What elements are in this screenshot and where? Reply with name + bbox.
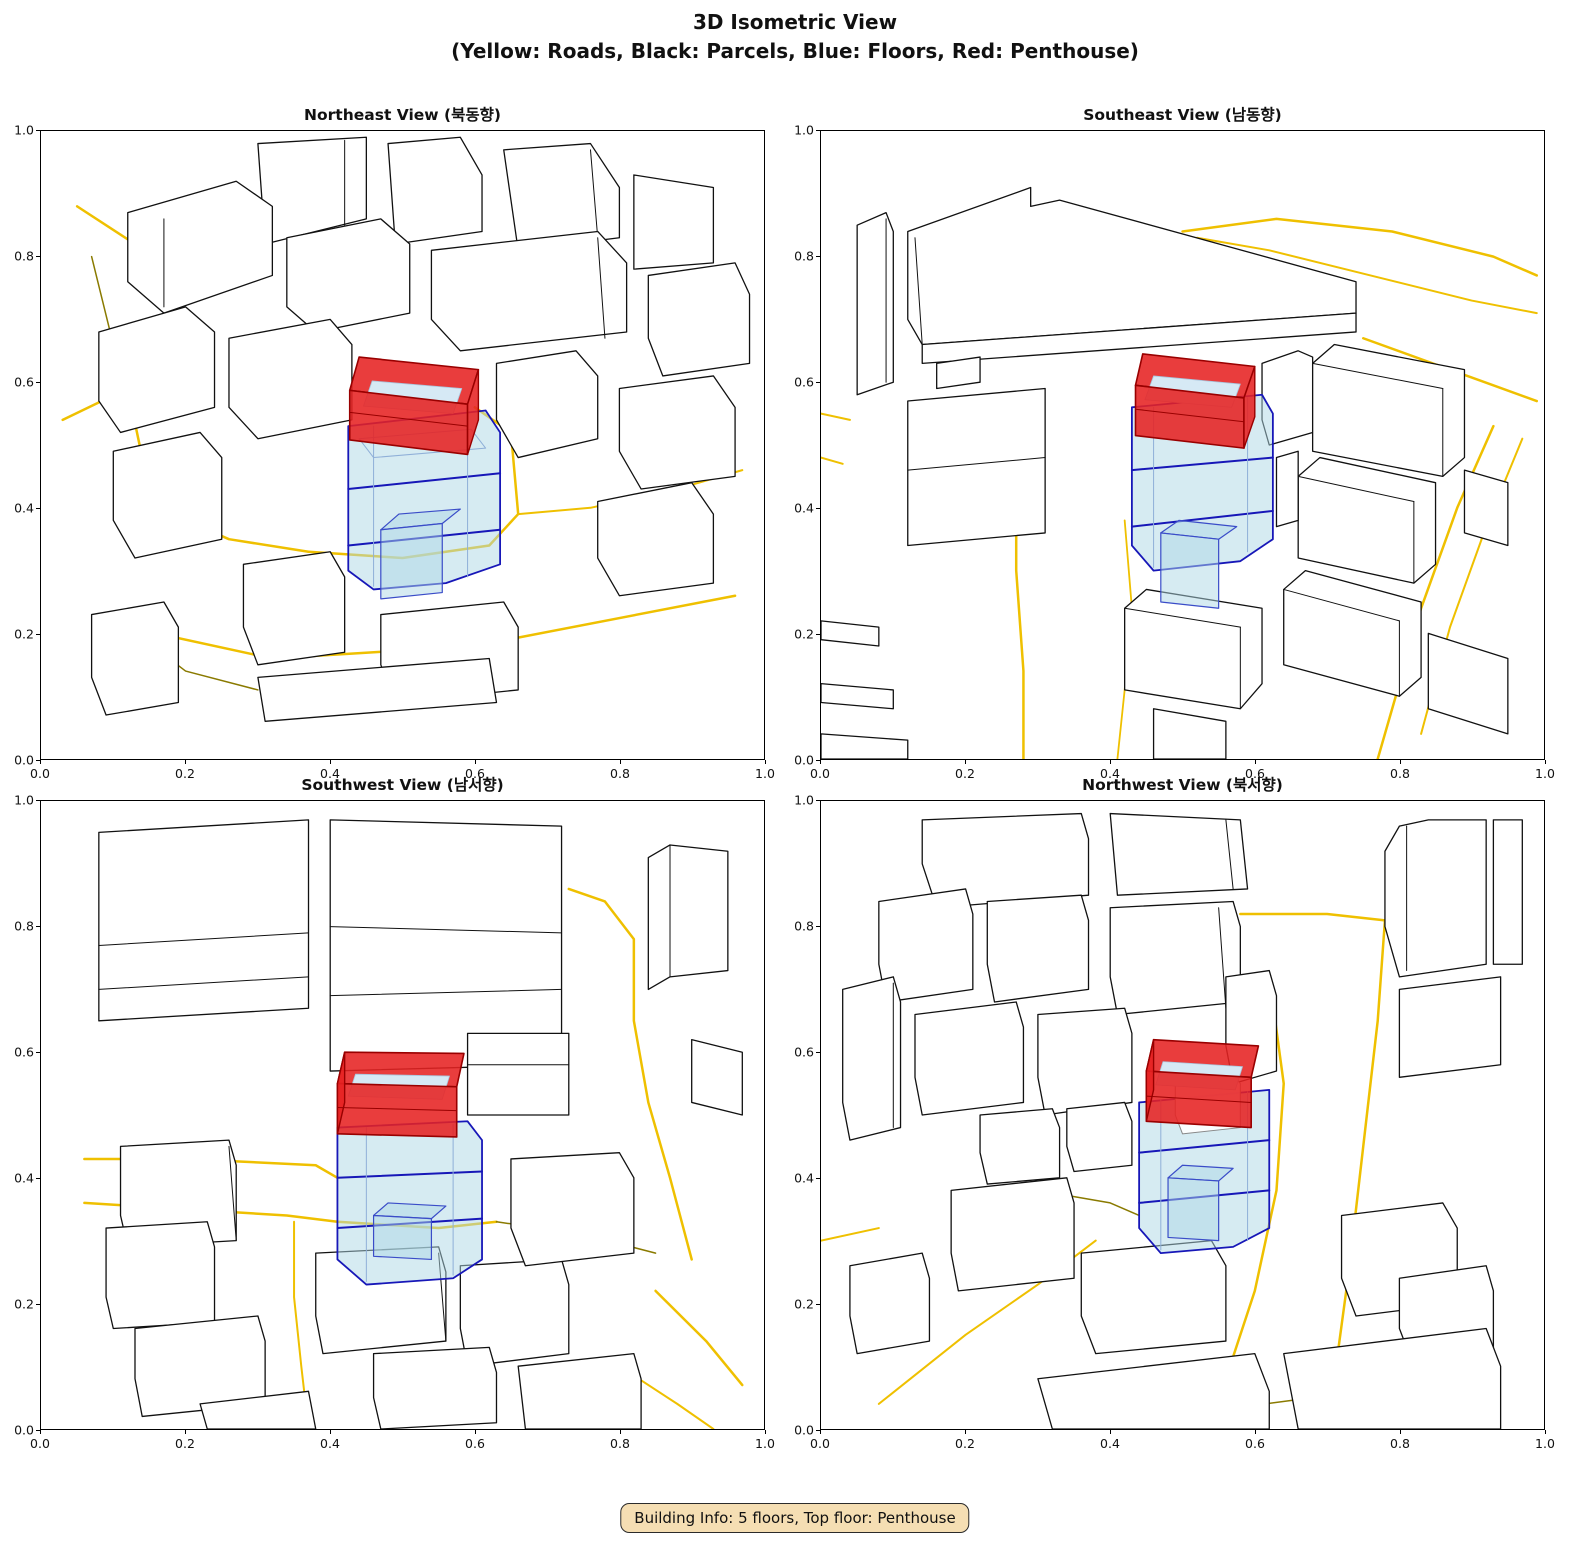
y-tick-mark bbox=[816, 1430, 820, 1431]
parcel-outline bbox=[106, 1222, 214, 1329]
parcel-outline bbox=[1313, 345, 1465, 477]
figure-title-line1: 3D Isometric View bbox=[0, 8, 1590, 37]
parcel-outline bbox=[99, 307, 215, 433]
parcel-outline bbox=[692, 1040, 743, 1115]
parcel-outline bbox=[496, 351, 597, 458]
scene-svg bbox=[821, 801, 1544, 1429]
y-tick-label: 1.0 bbox=[0, 793, 34, 808]
parcel-outline bbox=[518, 1354, 641, 1429]
floor-stack bbox=[337, 1121, 482, 1284]
x-tick-label: 0.6 bbox=[1245, 1436, 1265, 1451]
parcel-outline bbox=[504, 144, 620, 251]
y-tick-label: 0.2 bbox=[0, 1297, 34, 1312]
x-tick-label: 0.4 bbox=[1100, 1436, 1120, 1451]
parcel-outline bbox=[987, 895, 1088, 1002]
y-tick-label: 1.0 bbox=[780, 793, 814, 808]
x-tick-mark bbox=[1545, 760, 1546, 764]
plot-area bbox=[820, 130, 1545, 760]
y-tick-label: 0.4 bbox=[0, 501, 34, 516]
y-tick-mark bbox=[816, 926, 820, 927]
y-tick-mark bbox=[816, 130, 820, 131]
parcel-outline bbox=[1038, 1008, 1132, 1115]
y-tick-label: 0.4 bbox=[780, 1171, 814, 1186]
y-tick-mark bbox=[36, 800, 40, 801]
x-tick-mark bbox=[765, 760, 766, 764]
y-tick-label: 0.0 bbox=[780, 753, 814, 768]
parcel-outline bbox=[431, 231, 626, 350]
scene-svg bbox=[41, 801, 764, 1429]
figure-title-line2: (Yellow: Roads, Black: Parcels, Blue: Fl… bbox=[0, 37, 1590, 66]
parcel-outline bbox=[634, 175, 714, 269]
y-tick-label: 1.0 bbox=[0, 123, 34, 138]
y-tick-mark bbox=[816, 760, 820, 761]
panel-title: Northeast View (북동향) bbox=[40, 103, 765, 125]
parcel-outline bbox=[113, 432, 221, 558]
x-tick-label: 0.4 bbox=[320, 1436, 340, 1451]
parcel-outline bbox=[1284, 1329, 1501, 1429]
annex-front bbox=[1161, 533, 1219, 608]
x-tick-mark bbox=[475, 1430, 476, 1434]
x-tick-label: 1.0 bbox=[755, 1436, 775, 1451]
y-tick-mark bbox=[36, 508, 40, 509]
parcel-outline bbox=[1110, 901, 1240, 1014]
parcel-outline bbox=[843, 977, 901, 1140]
x-tick-label: 0.8 bbox=[610, 1436, 630, 1451]
parcel-outline bbox=[258, 659, 497, 722]
parcel-outline bbox=[243, 552, 344, 665]
figure-title: 3D Isometric View (Yellow: Roads, Black:… bbox=[0, 8, 1590, 66]
y-tick-label: 0.0 bbox=[0, 1423, 34, 1438]
y-tick-label: 0.0 bbox=[0, 753, 34, 768]
y-tick-label: 0.6 bbox=[780, 1045, 814, 1060]
parcel-outline bbox=[99, 820, 309, 1021]
y-tick-mark bbox=[816, 382, 820, 383]
y-tick-mark bbox=[36, 256, 40, 257]
parcel-outline bbox=[128, 181, 273, 313]
parcel-outline bbox=[648, 845, 728, 989]
parcel-outline bbox=[821, 684, 893, 709]
y-tick-mark bbox=[816, 1178, 820, 1179]
y-tick-label: 0.6 bbox=[0, 1045, 34, 1060]
road-line bbox=[821, 1228, 879, 1241]
y-tick-label: 0.8 bbox=[780, 919, 814, 934]
plot-area bbox=[820, 800, 1545, 1430]
parcel-outline bbox=[1067, 1102, 1132, 1171]
parcel-outline bbox=[980, 1109, 1060, 1184]
y-tick-label: 0.6 bbox=[780, 375, 814, 390]
y-tick-label: 0.8 bbox=[780, 249, 814, 264]
y-tick-mark bbox=[816, 508, 820, 509]
y-tick-label: 0.8 bbox=[0, 249, 34, 264]
parcel-outline bbox=[908, 388, 1045, 545]
x-tick-label: 0.8 bbox=[1390, 1436, 1410, 1451]
annex-front bbox=[381, 524, 442, 599]
parcel-outline bbox=[92, 602, 179, 715]
parcel-outline bbox=[511, 1153, 634, 1266]
x-tick-label: 0.2 bbox=[955, 1436, 975, 1451]
x-tick-mark bbox=[620, 760, 621, 764]
annex-front bbox=[1168, 1178, 1219, 1241]
annex-front bbox=[374, 1215, 432, 1259]
x-tick-mark bbox=[475, 760, 476, 764]
x-tick-mark bbox=[185, 760, 186, 764]
parcel-outline bbox=[648, 263, 749, 376]
x-tick-mark bbox=[1545, 1430, 1546, 1434]
parcel-outline bbox=[951, 1178, 1074, 1291]
y-tick-mark bbox=[36, 1430, 40, 1431]
plot-area bbox=[40, 130, 765, 760]
x-tick-label: 1.0 bbox=[1535, 1436, 1555, 1451]
y-tick-label: 0.4 bbox=[0, 1171, 34, 1186]
building-info-badge: Building Info: 5 floors, Top floor: Pent… bbox=[620, 1503, 969, 1533]
y-tick-label: 0.6 bbox=[0, 375, 34, 390]
x-tick-mark bbox=[1110, 1430, 1111, 1434]
parcel-outline bbox=[821, 734, 908, 759]
parcel-outline bbox=[388, 137, 482, 244]
parcel-outline bbox=[229, 319, 352, 438]
y-tick-mark bbox=[36, 1304, 40, 1305]
x-tick-mark bbox=[1255, 1430, 1256, 1434]
parcel-outline bbox=[287, 219, 410, 332]
scene-svg bbox=[821, 131, 1544, 759]
parcel-outline bbox=[1385, 820, 1486, 977]
y-tick-label: 0.2 bbox=[780, 627, 814, 642]
parcel-outline bbox=[857, 213, 893, 395]
x-tick-label: 0.0 bbox=[810, 1436, 830, 1451]
plot-area bbox=[40, 800, 765, 1430]
parcel-outline bbox=[1284, 571, 1421, 697]
y-tick-mark bbox=[816, 634, 820, 635]
parcel-outline bbox=[1038, 1354, 1269, 1429]
x-tick-mark bbox=[330, 760, 331, 764]
y-tick-mark bbox=[36, 130, 40, 131]
road-line bbox=[656, 1291, 743, 1385]
panel-title: Southeast View (남동향) bbox=[820, 103, 1545, 125]
x-tick-mark bbox=[185, 1430, 186, 1434]
x-tick-label: 0.6 bbox=[465, 1436, 485, 1451]
parcel-outline bbox=[598, 483, 714, 596]
road-line bbox=[1240, 914, 1385, 920]
parcel-outline bbox=[1399, 977, 1500, 1077]
parcel-outline bbox=[1125, 589, 1262, 708]
y-tick-label: 0.0 bbox=[780, 1423, 814, 1438]
parcel-outline bbox=[1428, 633, 1508, 733]
x-tick-mark bbox=[1110, 760, 1111, 764]
panel-title: Northwest View (북서향) bbox=[820, 773, 1545, 795]
x-tick-mark bbox=[1255, 760, 1256, 764]
road-line bbox=[821, 414, 850, 420]
y-tick-label: 0.2 bbox=[0, 627, 34, 642]
y-tick-label: 0.2 bbox=[780, 1297, 814, 1312]
y-tick-mark bbox=[36, 382, 40, 383]
x-tick-mark bbox=[40, 1430, 41, 1434]
x-tick-mark bbox=[965, 1430, 966, 1434]
y-tick-mark bbox=[36, 1052, 40, 1053]
x-tick-mark bbox=[1400, 760, 1401, 764]
scene-svg bbox=[41, 131, 764, 759]
panel-northwest: Northwest View (북서향) 0.00.00.20.20.40.40… bbox=[820, 800, 1545, 1430]
y-tick-label: 1.0 bbox=[780, 123, 814, 138]
panel-title: Southwest View (남서향) bbox=[40, 773, 765, 795]
x-tick-mark bbox=[620, 1430, 621, 1434]
y-tick-mark bbox=[816, 1052, 820, 1053]
y-tick-mark bbox=[36, 926, 40, 927]
panel-southwest: Southwest View (남서향) 0.00.00.20.20.40.40… bbox=[40, 800, 765, 1430]
parcel-outline bbox=[850, 1253, 930, 1353]
y-tick-mark bbox=[816, 1304, 820, 1305]
parcel-outline bbox=[1493, 820, 1522, 964]
x-tick-mark bbox=[820, 760, 821, 764]
x-tick-mark bbox=[1400, 1430, 1401, 1434]
parcel-outline bbox=[374, 1347, 497, 1429]
y-tick-mark bbox=[816, 800, 820, 801]
y-tick-mark bbox=[816, 256, 820, 257]
figure: 3D Isometric View (Yellow: Roads, Black:… bbox=[0, 0, 1590, 1560]
x-tick-mark bbox=[765, 1430, 766, 1434]
panel-southeast: Southeast View (남동향) 0.00.00.20.20.40.40… bbox=[820, 130, 1545, 760]
parcel-outline bbox=[1154, 709, 1226, 759]
x-tick-mark bbox=[40, 760, 41, 764]
x-tick-label: 0.2 bbox=[175, 1436, 195, 1451]
x-tick-mark bbox=[330, 1430, 331, 1434]
parcel-outline bbox=[1298, 458, 1435, 584]
parcel-outline bbox=[1464, 470, 1507, 545]
x-tick-label: 0.0 bbox=[30, 1436, 50, 1451]
y-tick-label: 0.8 bbox=[0, 919, 34, 934]
y-tick-mark bbox=[36, 1178, 40, 1179]
parcel-outline bbox=[915, 1002, 1023, 1115]
parcel-outline bbox=[619, 376, 735, 489]
parcel-outline bbox=[821, 621, 879, 646]
x-tick-mark bbox=[820, 1430, 821, 1434]
x-tick-mark bbox=[965, 760, 966, 764]
y-tick-mark bbox=[36, 634, 40, 635]
parcel-outline bbox=[1081, 1241, 1226, 1354]
panel-northeast: Northeast View (북동향) 0.00.00.20.20.40.40… bbox=[40, 130, 765, 760]
y-tick-mark bbox=[36, 760, 40, 761]
parcel-outline bbox=[468, 1033, 569, 1115]
parcel-outline bbox=[1276, 451, 1298, 526]
road-line bbox=[821, 458, 843, 464]
y-tick-label: 0.4 bbox=[780, 501, 814, 516]
parcel-outline bbox=[937, 357, 980, 388]
